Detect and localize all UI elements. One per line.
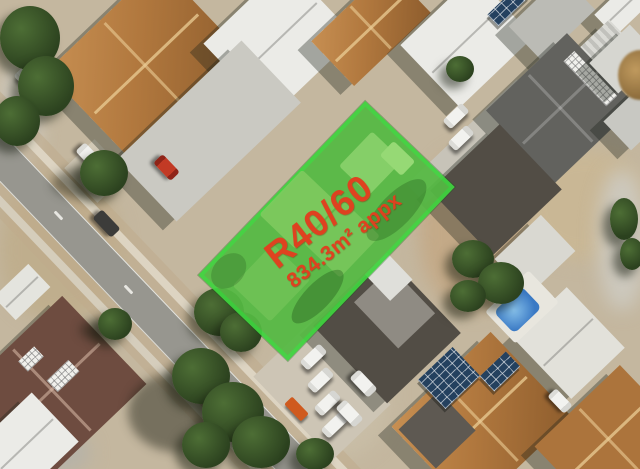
tree-canopy [98, 308, 132, 340]
shrub [610, 198, 638, 240]
tree-canopy [450, 280, 486, 312]
tree-canopy [446, 56, 474, 82]
tree-canopy [232, 416, 290, 468]
shrub [620, 238, 640, 270]
tree-canopy [80, 150, 128, 196]
aerial-photo: R40/60 834.3m² appx [0, 0, 640, 469]
tree-canopy [182, 422, 230, 468]
dark-roof-section [398, 392, 475, 469]
tree-canopy [296, 438, 334, 469]
